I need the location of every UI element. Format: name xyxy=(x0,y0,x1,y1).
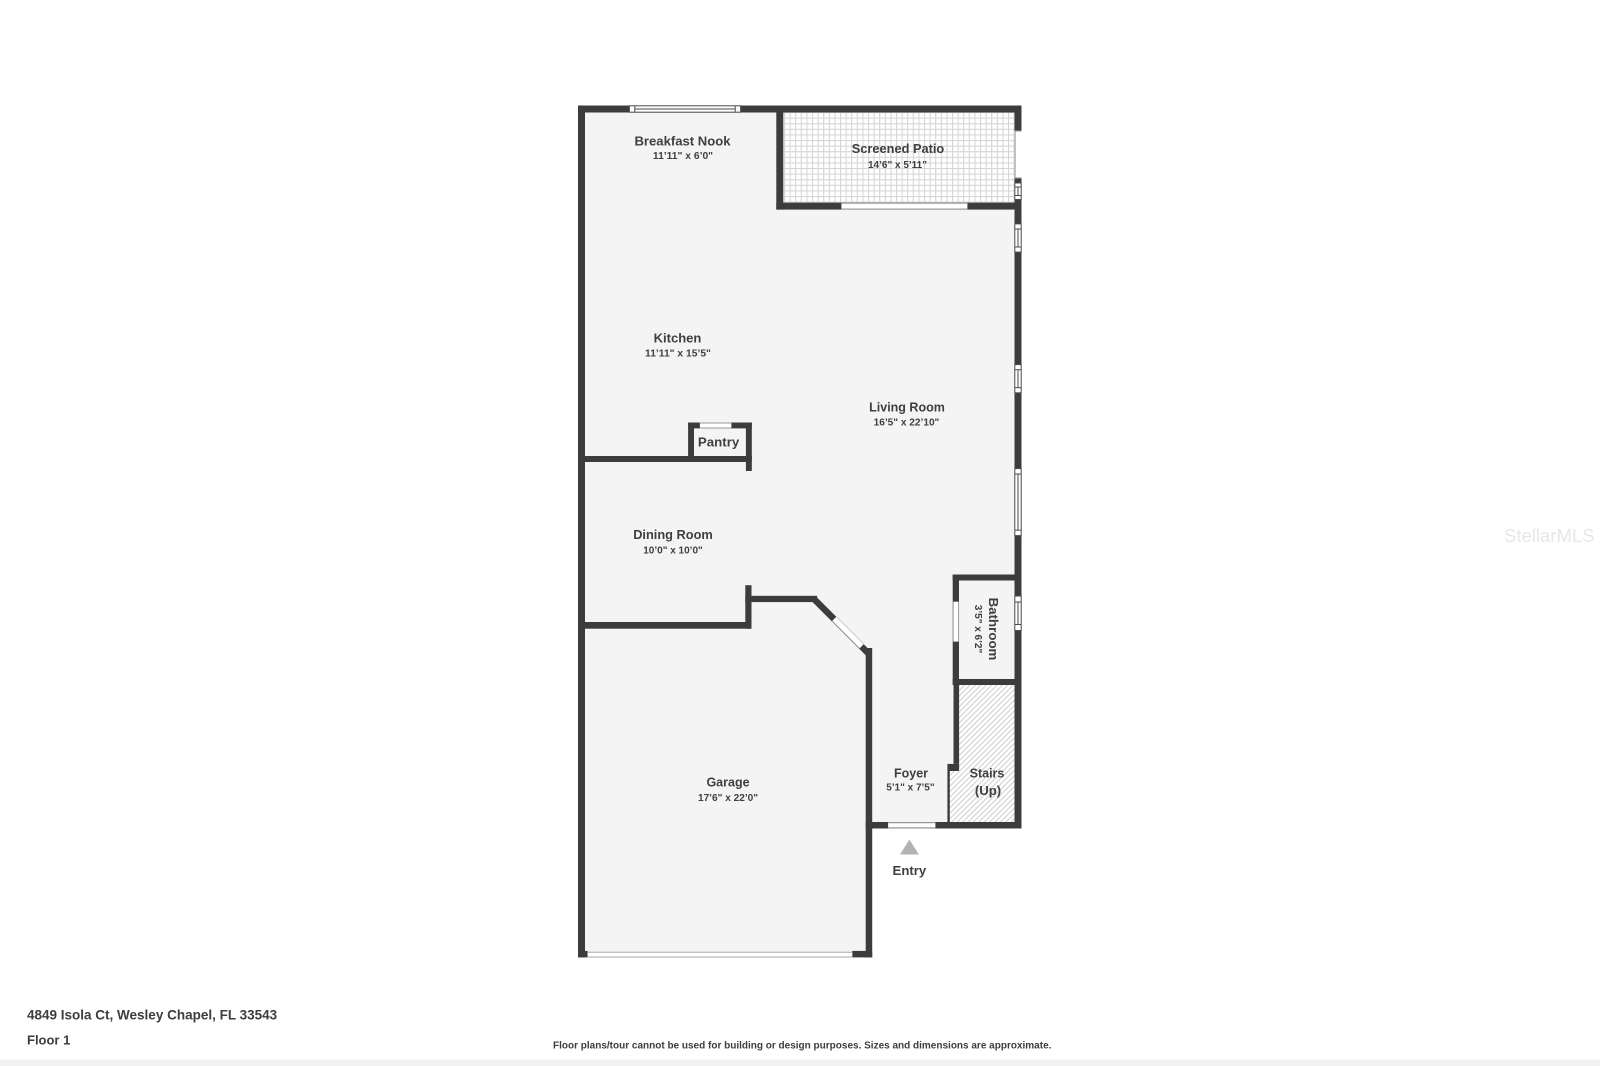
svg-text:Breakfast Nook: Breakfast Nook xyxy=(634,134,731,149)
svg-text:Entry: Entry xyxy=(893,863,927,878)
svg-text:Floor plans/tour cannot be use: Floor plans/tour cannot be used for buil… xyxy=(553,1041,1052,1052)
svg-text:11’11" x 15’5": 11’11" x 15’5" xyxy=(645,348,711,359)
svg-text:Living Room: Living Room xyxy=(869,401,945,415)
svg-text:StellarMLS: StellarMLS xyxy=(1504,525,1594,546)
svg-text:16’5" x 22’10": 16’5" x 22’10" xyxy=(874,417,940,428)
svg-text:14’6" x 5’11": 14’6" x 5’11" xyxy=(868,160,927,171)
svg-text:17’6" x 22’0": 17’6" x 22’0" xyxy=(698,793,758,804)
svg-text:5’1" x 7’5": 5’1" x 7’5" xyxy=(886,782,935,793)
svg-text:Floor 1: Floor 1 xyxy=(27,1033,70,1048)
svg-text:3’5" x 6’2": 3’5" x 6’2" xyxy=(972,605,983,654)
svg-text:Foyer: Foyer xyxy=(894,766,928,780)
svg-text:Kitchen: Kitchen xyxy=(654,331,702,346)
svg-text:Stairs: Stairs xyxy=(970,767,1005,781)
svg-text:11’11" x 6’0": 11’11" x 6’0" xyxy=(653,151,713,162)
svg-text:10’0" x 10’0": 10’0" x 10’0" xyxy=(643,545,703,556)
svg-text:Screened Patio: Screened Patio xyxy=(852,141,945,156)
svg-text:4849 Isola Ct, Wesley Chapel,: 4849 Isola Ct, Wesley Chapel, FL 33543 xyxy=(27,1008,278,1023)
svg-text:Garage: Garage xyxy=(706,776,749,790)
svg-text:Dining Room: Dining Room xyxy=(633,527,713,542)
svg-text:Bathroom: Bathroom xyxy=(986,598,1001,661)
svg-text:Pantry: Pantry xyxy=(698,435,740,450)
svg-text:(Up): (Up) xyxy=(975,783,1001,798)
